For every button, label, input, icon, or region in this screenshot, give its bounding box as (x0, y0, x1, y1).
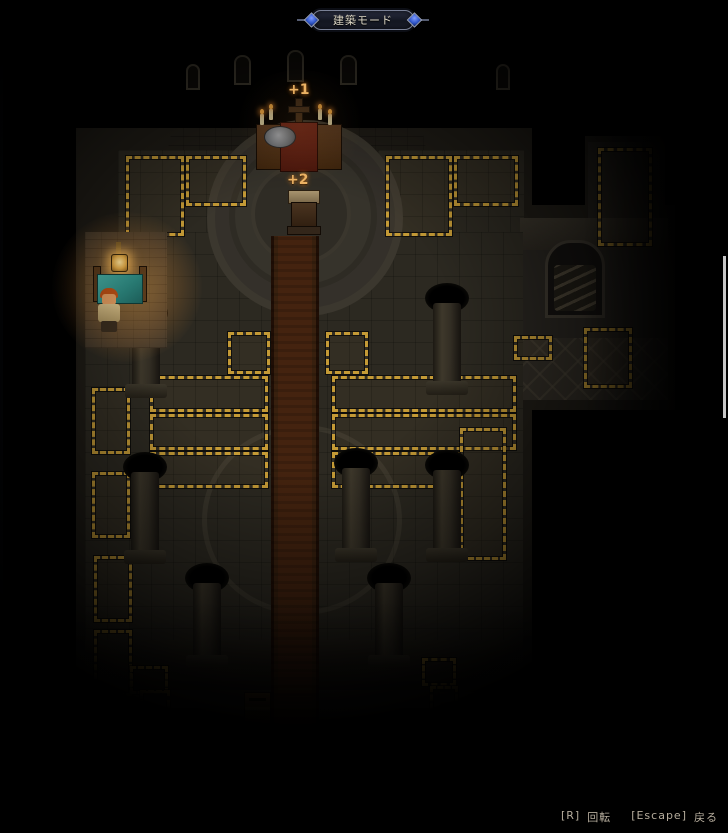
build-zone[interactable] (94, 556, 132, 622)
build-zone[interactable] (584, 328, 632, 388)
donation-slot (249, 698, 266, 701)
flame-icon (318, 104, 322, 109)
arched-window (287, 50, 304, 82)
lectern-bonus-label: +2 (287, 172, 308, 188)
lantern-icon (111, 254, 128, 272)
flame-icon (269, 104, 273, 109)
stone-pillar (366, 563, 412, 669)
candle (260, 114, 264, 125)
candle (328, 114, 332, 125)
cross-icon (288, 106, 310, 113)
offering-plate (264, 126, 296, 148)
donation-band (245, 707, 270, 710)
stone-pillar (122, 452, 168, 564)
arched-window (340, 55, 357, 85)
stone-pillar (184, 563, 230, 669)
gem-icon (304, 12, 320, 28)
build-zone[interactable] (126, 156, 184, 236)
build-zone[interactable] (386, 156, 452, 236)
altar-bonus-label: +1 (288, 82, 309, 98)
flame-icon (328, 109, 332, 114)
key-hints: [R] 回転 [Escape] 戻る (561, 809, 718, 825)
build-zone[interactable] (326, 332, 368, 374)
build-zone[interactable] (186, 156, 246, 206)
build-zone[interactable] (454, 156, 518, 206)
red-carpet-entrance (271, 640, 319, 744)
arched-window (496, 64, 510, 90)
back-label: 戻る (694, 809, 718, 825)
donation-box[interactable] (244, 692, 271, 726)
candle (318, 109, 322, 120)
scrollbar-thumb[interactable] (723, 256, 726, 418)
rotate-label: 回転 (587, 809, 611, 825)
back-key-hint: [Escape] (631, 809, 687, 825)
left-window-edge (0, 24, 3, 833)
build-zone[interactable] (228, 332, 270, 374)
arched-window (234, 55, 251, 85)
build-zone[interactable] (140, 690, 170, 716)
stone-pillar (424, 450, 470, 562)
build-zone[interactable] (430, 686, 458, 744)
game-viewport: +1 +2 建築モード [R] 回転 [Escape] 戻る (0, 0, 728, 833)
build-mode-label: 建築モード (333, 12, 393, 28)
build-zone[interactable] (94, 630, 132, 696)
lectern-base (287, 226, 321, 235)
player-character (98, 304, 120, 322)
stairs-icon (554, 265, 596, 311)
candle (269, 109, 273, 120)
pew-build-zone[interactable] (150, 414, 268, 450)
rotate-key-hint: [R] (561, 809, 580, 825)
hint-spacer (618, 809, 624, 825)
flame-icon (260, 109, 264, 114)
arched-window (186, 64, 200, 90)
stairs-down-alcove[interactable] (545, 240, 605, 318)
build-zone[interactable] (598, 148, 652, 246)
build-mode-banner: 建築モード (312, 10, 414, 30)
stone-pillar (424, 283, 470, 395)
gem-icon (407, 12, 423, 28)
build-zone[interactable] (514, 336, 552, 360)
stone-pillar (333, 448, 379, 562)
player-character-legs (101, 321, 117, 332)
build-zone[interactable] (422, 658, 456, 686)
